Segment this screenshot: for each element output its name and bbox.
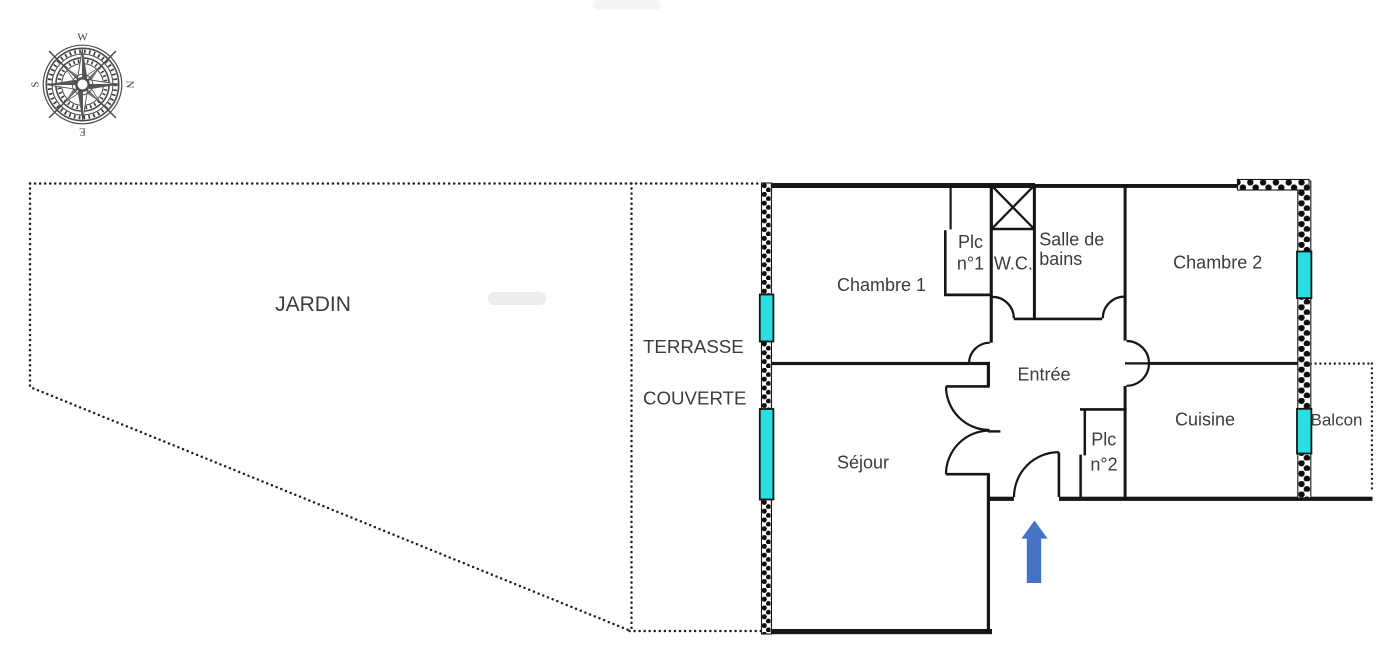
svg-text:S: S: [30, 81, 42, 87]
svg-text:N: N: [124, 81, 136, 89]
svg-text:TERRASSE: TERRASSE: [643, 336, 744, 357]
svg-text:Chambre 2: Chambre 2: [1173, 253, 1262, 273]
svg-text:Séjour: Séjour: [837, 453, 889, 473]
svg-text:Balcon: Balcon: [1311, 411, 1363, 430]
svg-text:Plc: Plc: [1091, 430, 1116, 450]
svg-text:n°1: n°1: [957, 254, 984, 274]
svg-text:bains: bains: [1039, 249, 1082, 269]
svg-text:Plc: Plc: [958, 232, 983, 252]
svg-text:COUVERTE: COUVERTE: [643, 388, 747, 409]
svg-text:W: W: [77, 32, 88, 44]
svg-text:Salle de: Salle de: [1039, 230, 1104, 250]
svg-text:n°2: n°2: [1090, 455, 1117, 475]
svg-text:JARDIN: JARDIN: [275, 293, 351, 316]
svg-text:E: E: [79, 126, 86, 138]
svg-text:W.C.: W.C.: [994, 254, 1033, 274]
svg-text:Entrée: Entrée: [1017, 365, 1070, 385]
svg-text:Chambre 1: Chambre 1: [837, 275, 926, 295]
svg-text:Cuisine: Cuisine: [1175, 410, 1235, 430]
